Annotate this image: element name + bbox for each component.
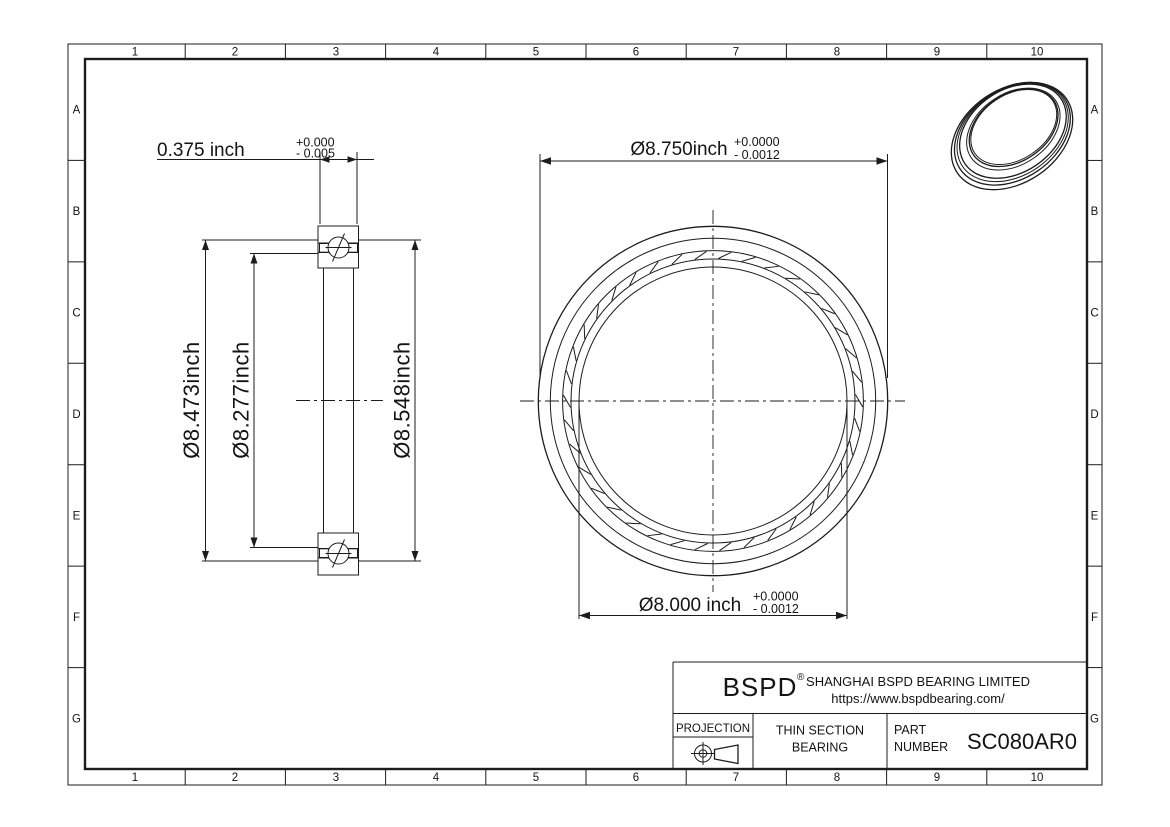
- product-title-line2: BEARING: [792, 741, 848, 755]
- grid-col-label: 10: [1031, 772, 1044, 784]
- grid-row-label: F: [1091, 612, 1098, 624]
- grid-col-label: 1: [132, 47, 138, 59]
- grid-col-label: 4: [433, 47, 440, 59]
- registered-mark: ®: [797, 672, 805, 683]
- grid-row-label: E: [1091, 510, 1099, 522]
- dim-race-left: Ø8.473inch: [179, 341, 204, 459]
- grid-row-label: G: [72, 713, 81, 725]
- grid-row-label: C: [72, 308, 80, 320]
- grid-col-label: 7: [733, 47, 739, 59]
- grid-row-label: E: [73, 510, 81, 522]
- dim-width-tol-minus: - 0.005: [296, 147, 335, 161]
- grid-col-label: 9: [934, 772, 940, 784]
- grid-row-label: B: [1091, 206, 1099, 218]
- section-dimensions: 0.375 inch +0.000 - 0.005 Ø8.473inch Ø8.…: [157, 136, 421, 562]
- grid-col-label: 8: [834, 772, 840, 784]
- grid-row-label: D: [1090, 409, 1098, 421]
- front-view-dimensions: Ø8.750inch +0.0000 - 0.0012 Ø8.000 inch …: [540, 135, 888, 619]
- grid-row-label: G: [1090, 713, 1099, 725]
- dim-bore-tol-minus: - 0.0012: [753, 602, 799, 616]
- grid-row-label: D: [72, 409, 80, 421]
- grid-col-label: 1: [132, 772, 138, 784]
- part-number: SC080AR0: [967, 729, 1077, 754]
- dim-bore-value: Ø8.000 inch: [639, 595, 741, 616]
- part-label-line2: NUMBER: [894, 740, 948, 754]
- grid-col-label: 8: [834, 47, 840, 59]
- section-view: [296, 226, 383, 575]
- grid-row-label: C: [1090, 308, 1098, 320]
- iso-view: [931, 60, 1093, 212]
- projection-symbol-icon: [691, 742, 738, 765]
- grid-col-label: 3: [333, 772, 339, 784]
- grid-col-label: 6: [633, 47, 639, 59]
- company-name: SHANGHAI BSPD BEARING LIMITED: [806, 674, 1030, 689]
- part-label-line1: PART: [894, 723, 927, 737]
- engineering-drawing: 1 2 3 4 5 6 7 8 9 10 1 2 3 4 5 6 7 8 9 1…: [0, 0, 1170, 827]
- product-title-line1: THIN SECTION: [776, 724, 864, 738]
- company-logo: BSPD: [723, 672, 798, 702]
- grid-row-label: F: [73, 612, 80, 624]
- grid-col-label: 10: [1031, 47, 1044, 59]
- dim-od-value: Ø8.750inch: [630, 139, 727, 160]
- dim-race-inner: Ø8.277inch: [229, 341, 254, 459]
- drawing-sheet: 1 2 3 4 5 6 7 8 9 10 1 2 3 4 5 6 7 8 9 1…: [0, 0, 1170, 827]
- dim-width-value: 0.375 inch: [157, 140, 245, 161]
- grid-col-label: 3: [333, 47, 339, 59]
- grid-col-label: 4: [433, 772, 440, 784]
- grid-row-label: A: [73, 105, 81, 117]
- grid-col-label: 2: [232, 47, 238, 59]
- grid-col-label: 5: [533, 772, 539, 784]
- dim-od-tol-plus: +0.0000: [734, 135, 780, 149]
- dim-od-tol-minus: - 0.0012: [734, 148, 780, 162]
- grid-row-label: A: [1091, 105, 1099, 117]
- company-website: https://www.bspdbearing.com/: [831, 691, 1005, 706]
- grid-col-label: 9: [934, 47, 940, 59]
- title-block: BSPD ® SHANGHAI BSPD BEARING LIMITED htt…: [673, 662, 1087, 769]
- grid-col-label: 7: [733, 772, 739, 784]
- grid-row-label: B: [73, 206, 81, 218]
- dim-race-outer: Ø8.548inch: [390, 341, 415, 459]
- grid-col-label: 2: [232, 772, 238, 784]
- grid-col-label: 5: [533, 47, 539, 59]
- grid-col-label: 6: [633, 772, 639, 784]
- projection-label: PROJECTION: [676, 723, 750, 735]
